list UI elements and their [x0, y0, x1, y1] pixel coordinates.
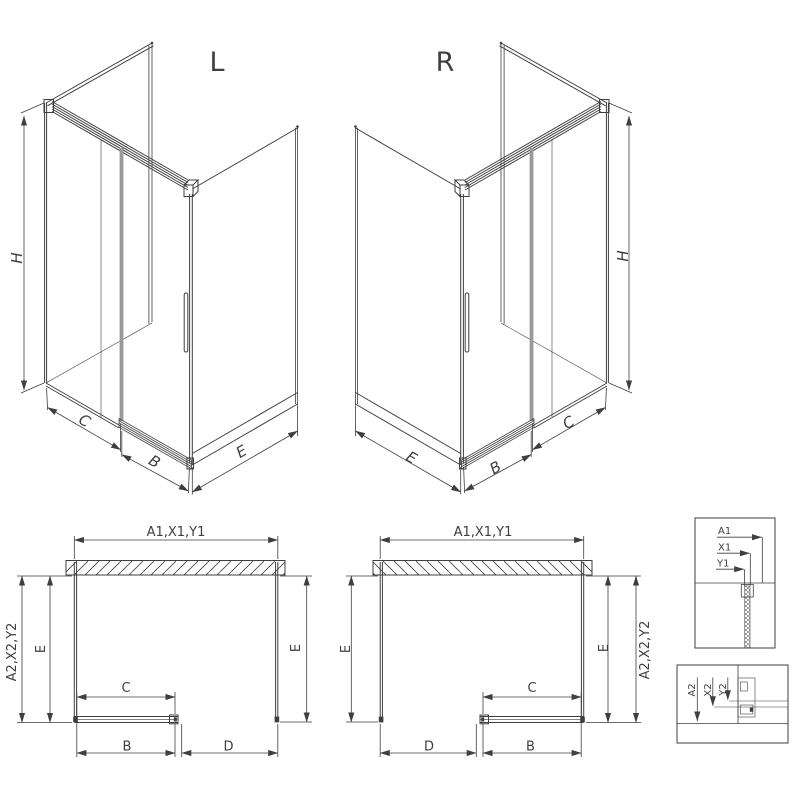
- detail-top-profile: A1 X1 Y1: [695, 518, 775, 648]
- plan-left-label-a1: A1,X1,Y1: [147, 525, 206, 540]
- detail-top-label-x1: X1: [718, 543, 731, 554]
- dim-label-b-right: B: [487, 457, 505, 478]
- plan-right-label-d: D: [424, 740, 434, 755]
- plan-left-label-e2: E: [289, 644, 304, 652]
- plan-right-label-a2: A2,X2,Y2: [638, 621, 653, 680]
- dim-label-h-right: H: [614, 250, 632, 261]
- dim-label-e-left: E: [233, 441, 251, 462]
- dim-label-e-right: E: [403, 448, 421, 469]
- detail-bottom-label-y2: Y2: [718, 683, 729, 696]
- plan-right-label-b: B: [526, 740, 535, 755]
- plan-right-label-e2: E: [597, 644, 612, 652]
- plan-left-label-e1: E: [34, 645, 49, 653]
- plan-left-label-b: B: [123, 740, 132, 755]
- variant-label-right: R: [436, 47, 455, 78]
- plan-view-left: A1,X1,Y1 A2,X2,Y2 E E C B D: [5, 525, 312, 757]
- dim-label-c-left: C: [75, 410, 94, 431]
- dim-label-c-right: C: [559, 412, 578, 433]
- plan-view-right: A1,X1,Y1 E E A2,X2,Y2 C D B: [339, 525, 653, 757]
- plan-right-label-c: C: [527, 681, 536, 696]
- plan-right-label-e1: E: [339, 645, 354, 653]
- plan-right-label-a1: A1,X1,Y1: [454, 525, 513, 540]
- shower-enclosure-drawing: L H C B E R H E B C A1,X1,Y1 A2,X2,Y2 E …: [0, 0, 800, 800]
- iso-view-left: L H C B E: [8, 42, 299, 495]
- detail-top-label-y1: Y1: [716, 559, 729, 570]
- detail-bottom-label-x2: X2: [703, 683, 714, 696]
- detail-bottom-profile: A2 X2 Y2: [677, 665, 788, 743]
- plan-left-label-d: D: [223, 740, 233, 755]
- variant-label-left: L: [209, 47, 224, 78]
- plan-left-label-a2: A2,X2,Y2: [5, 623, 20, 682]
- dim-label-h-left: H: [8, 252, 26, 263]
- glass-section-hatched: [745, 586, 750, 648]
- detail-bottom-label-a2: A2: [687, 683, 698, 696]
- detail-top-label-a1: A1: [718, 526, 731, 537]
- technical-drawing-page: L H C B E R H E B C A1,X1,Y1 A2,X2,Y2 E …: [0, 0, 800, 800]
- plan-left-label-c: C: [121, 681, 130, 696]
- iso-view-right: R H E B C: [354, 42, 632, 495]
